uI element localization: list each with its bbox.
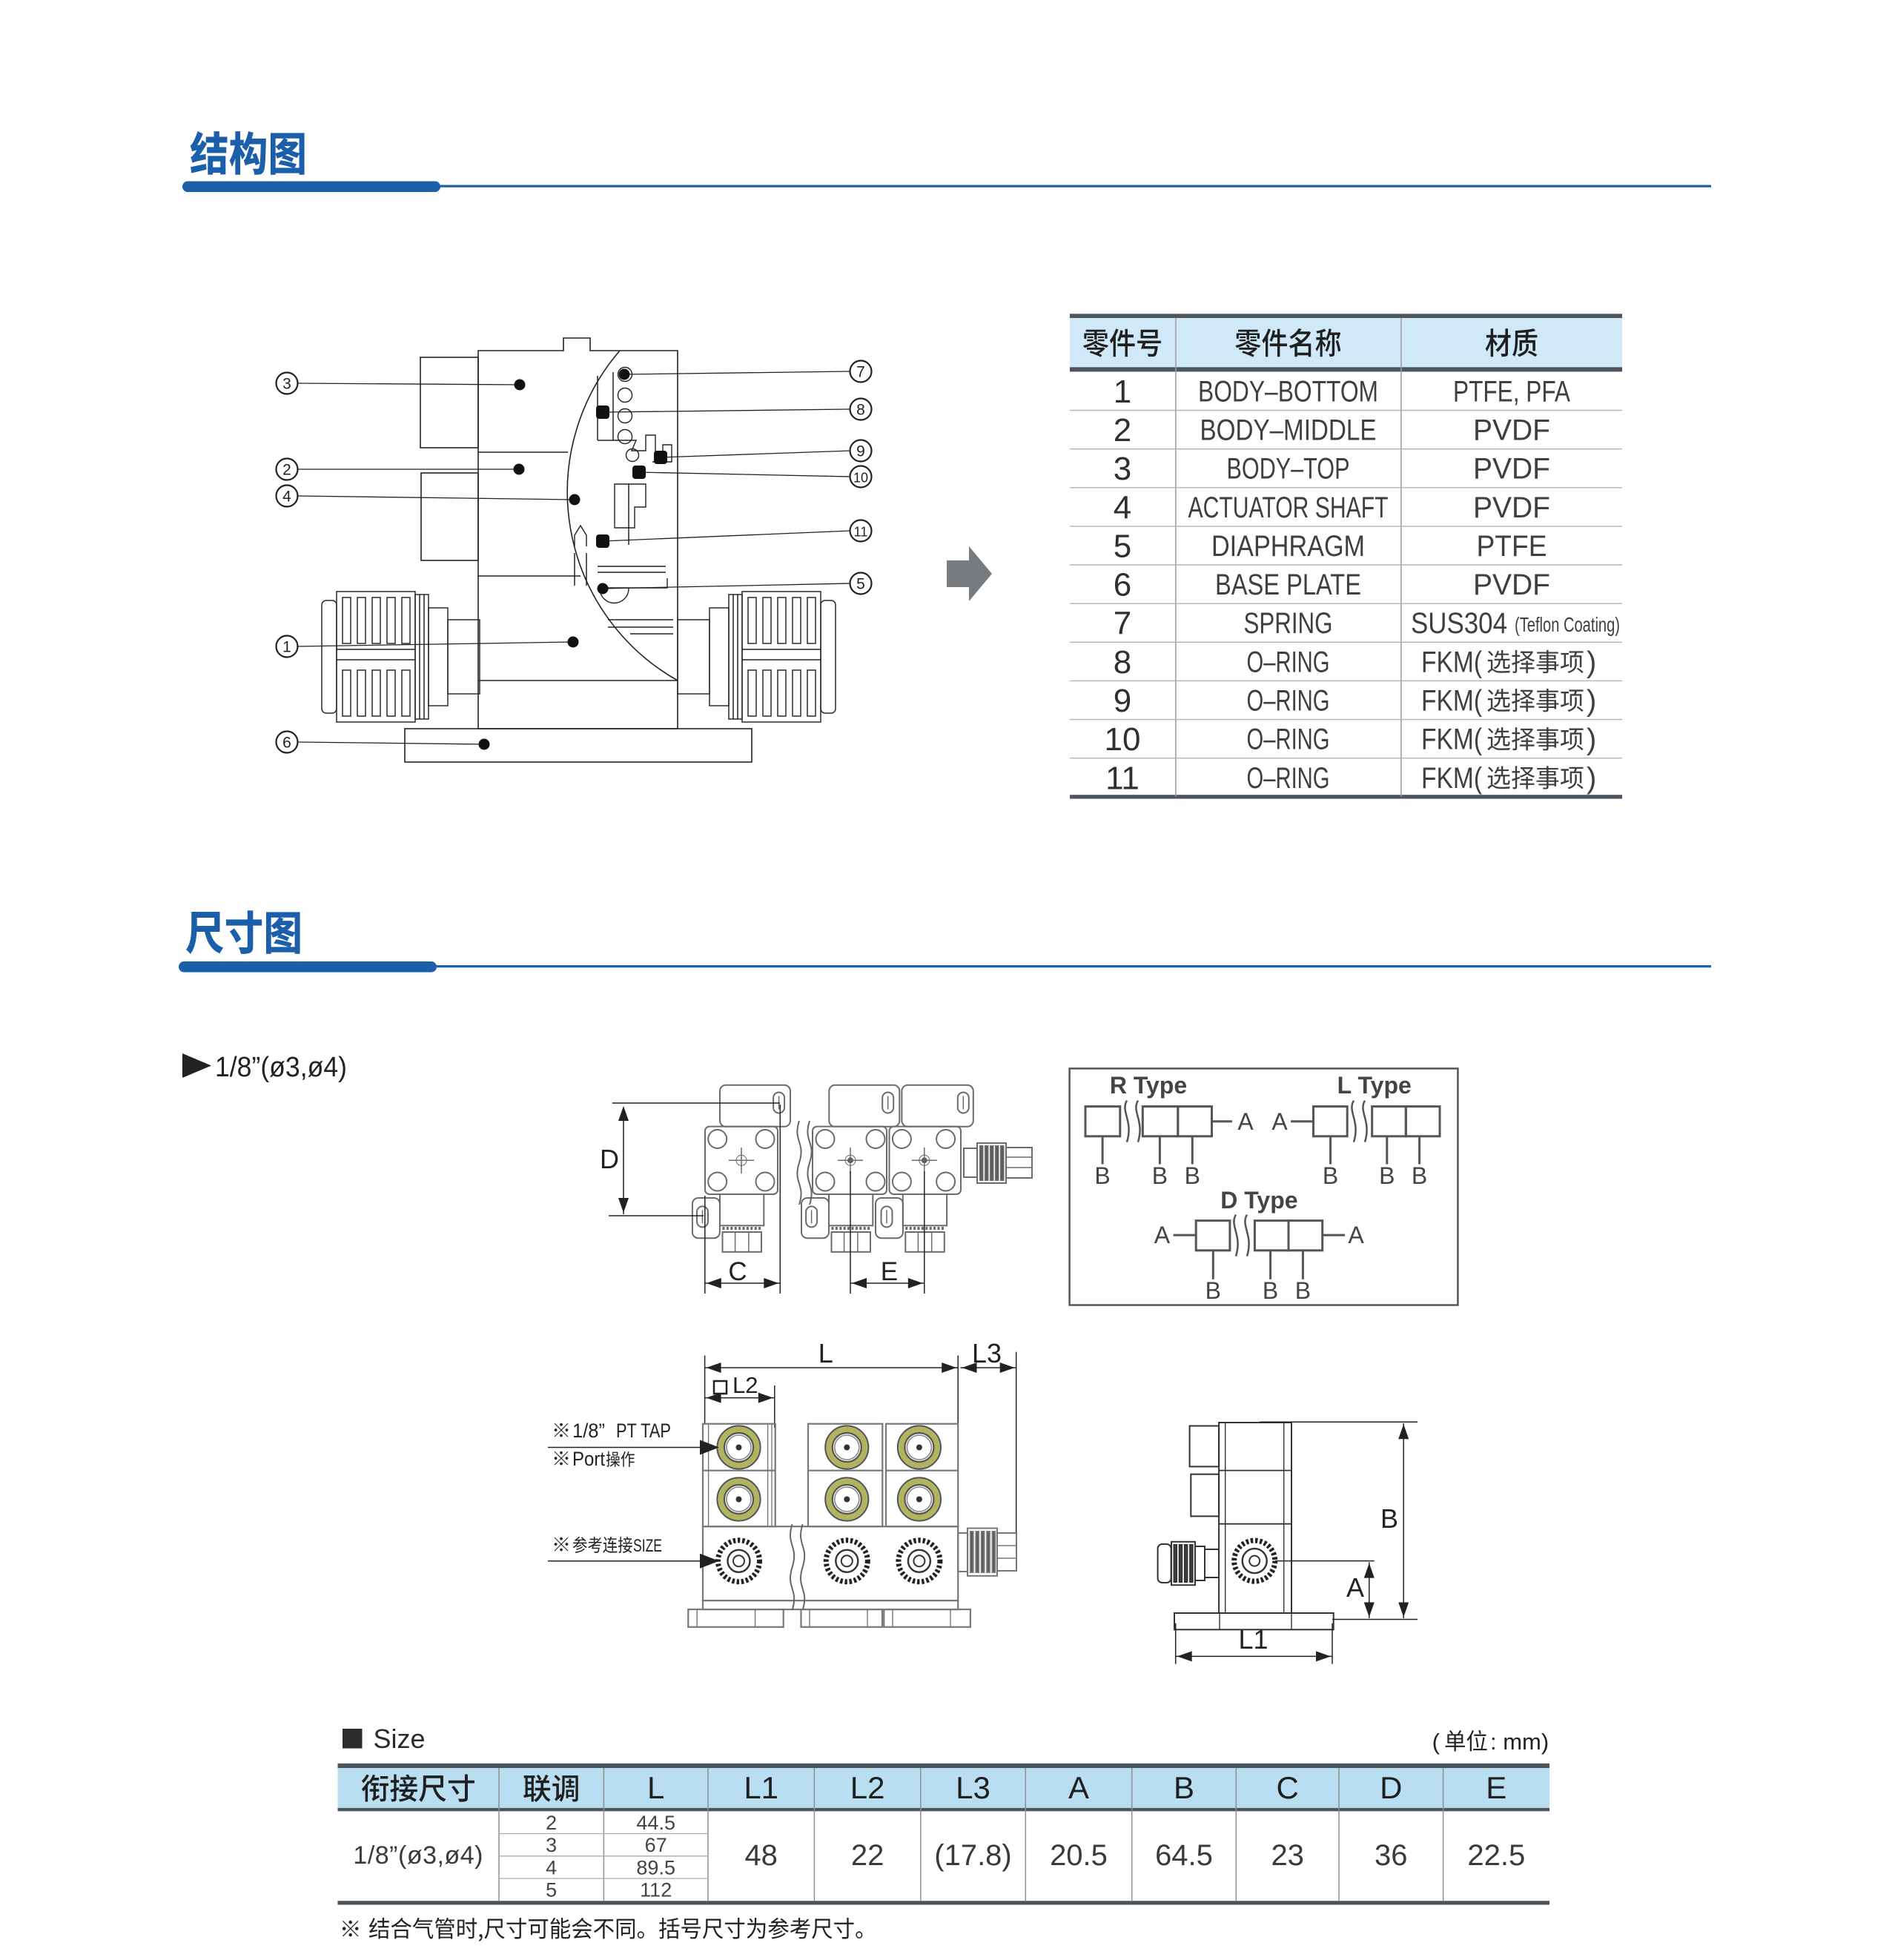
svg-text:PVDF: PVDF xyxy=(1473,453,1550,486)
svg-text:1/8”(ø3,ø4): 1/8”(ø3,ø4) xyxy=(215,1052,347,1083)
svg-text:2: 2 xyxy=(1114,412,1131,448)
svg-text:L3: L3 xyxy=(956,1770,990,1805)
svg-text:PTFE, PFA: PTFE, PFA xyxy=(1453,376,1570,408)
svg-text:SUS304: SUS304 xyxy=(1411,607,1507,640)
svg-text:SIZE: SIZE xyxy=(633,1536,662,1556)
svg-text:5: 5 xyxy=(1114,529,1131,565)
svg-text:B: B xyxy=(1323,1162,1338,1189)
svg-text:36: 36 xyxy=(1375,1839,1408,1872)
svg-text:O–RING: O–RING xyxy=(1247,646,1330,678)
svg-text:7: 7 xyxy=(856,364,865,381)
svg-text:4: 4 xyxy=(546,1856,557,1878)
svg-text:A: A xyxy=(1346,1572,1364,1603)
svg-text:20.5: 20.5 xyxy=(1050,1839,1108,1872)
svg-text:O–RING: O–RING xyxy=(1247,724,1330,756)
svg-text:B: B xyxy=(1263,1277,1278,1304)
svg-text:): ) xyxy=(1587,646,1596,678)
svg-text:3: 3 xyxy=(1114,451,1131,487)
svg-text:): ) xyxy=(1587,762,1596,795)
svg-text:A: A xyxy=(1271,1108,1288,1135)
svg-text:8: 8 xyxy=(856,402,865,419)
svg-text:67: 67 xyxy=(645,1834,667,1856)
svg-text:: mm): : mm) xyxy=(1490,1729,1549,1755)
svg-text:10: 10 xyxy=(853,471,868,486)
svg-text:PVDF: PVDF xyxy=(1473,569,1550,601)
svg-text:FKM(: FKM( xyxy=(1421,646,1483,678)
svg-text:PVDF: PVDF xyxy=(1473,414,1550,447)
svg-text:SPRING: SPRING xyxy=(1244,607,1333,640)
svg-text:): ) xyxy=(1587,685,1596,718)
svg-text:L Type: L Type xyxy=(1337,1072,1412,1099)
svg-text:22.5: 22.5 xyxy=(1467,1839,1525,1872)
svg-text:FKM(: FKM( xyxy=(1421,685,1483,718)
svg-text:B: B xyxy=(1152,1162,1168,1189)
svg-text:L3: L3 xyxy=(972,1338,1002,1368)
svg-text:C: C xyxy=(1277,1770,1299,1805)
svg-text:9: 9 xyxy=(1114,683,1131,719)
svg-text:L: L xyxy=(818,1338,833,1368)
svg-text:11: 11 xyxy=(854,525,868,540)
svg-text:112: 112 xyxy=(640,1879,672,1901)
svg-text:L: L xyxy=(647,1770,664,1805)
svg-text:B: B xyxy=(1205,1277,1221,1304)
svg-text:9: 9 xyxy=(856,443,865,460)
svg-text:C: C xyxy=(728,1257,747,1286)
svg-text:E: E xyxy=(881,1257,898,1286)
svg-text:ACTUATOR SHAFT: ACTUATOR SHAFT xyxy=(1188,491,1389,524)
svg-text:Size: Size xyxy=(374,1724,426,1754)
svg-text:PTFE: PTFE xyxy=(1477,530,1547,563)
svg-text:B: B xyxy=(1412,1162,1427,1189)
svg-text:PVDF: PVDF xyxy=(1473,491,1550,524)
svg-text:1/8”(ø3,ø4): 1/8”(ø3,ø4) xyxy=(353,1841,483,1870)
svg-text:7: 7 xyxy=(1114,606,1131,642)
svg-text:L1: L1 xyxy=(744,1770,778,1805)
svg-text:A: A xyxy=(1237,1108,1254,1135)
svg-text:5: 5 xyxy=(546,1879,557,1901)
svg-text:2: 2 xyxy=(546,1812,557,1834)
svg-text:(Teflon Coating): (Teflon Coating) xyxy=(1515,613,1620,636)
svg-text:48: 48 xyxy=(744,1839,778,1872)
svg-text:O–RING: O–RING xyxy=(1247,685,1330,718)
svg-text:FKM(: FKM( xyxy=(1421,762,1483,795)
svg-text:B: B xyxy=(1174,1770,1194,1805)
svg-text:A: A xyxy=(1154,1222,1171,1248)
svg-text:44.5: 44.5 xyxy=(636,1812,675,1834)
svg-text:BODY–MIDDLE: BODY–MIDDLE xyxy=(1200,414,1377,447)
svg-text:E: E xyxy=(1486,1770,1506,1805)
svg-text:B: B xyxy=(1094,1162,1110,1189)
svg-text:6: 6 xyxy=(282,735,291,752)
svg-text:2: 2 xyxy=(282,462,291,479)
svg-text:FKM(: FKM( xyxy=(1421,724,1483,756)
svg-text:3: 3 xyxy=(546,1834,557,1856)
svg-text:PT TAP: PT TAP xyxy=(616,1420,671,1442)
svg-text:1: 1 xyxy=(1114,374,1131,410)
svg-text:1/8”: 1/8” xyxy=(572,1420,605,1442)
svg-text:4: 4 xyxy=(282,489,291,506)
svg-text:BODY–TOP: BODY–TOP xyxy=(1227,453,1350,486)
svg-text:B: B xyxy=(1379,1162,1395,1189)
svg-text:23: 23 xyxy=(1271,1839,1304,1872)
svg-text:L2: L2 xyxy=(850,1770,885,1805)
svg-text:1: 1 xyxy=(282,639,291,656)
svg-text:8: 8 xyxy=(1114,644,1131,681)
svg-text:22: 22 xyxy=(851,1839,884,1872)
svg-text:B: B xyxy=(1295,1277,1311,1304)
svg-text:D: D xyxy=(1380,1770,1402,1805)
svg-text:A: A xyxy=(1348,1222,1364,1248)
svg-text:DIAPHRAGM: DIAPHRAGM xyxy=(1211,530,1365,563)
svg-text:(: ( xyxy=(1432,1729,1440,1755)
svg-text:D Type: D Type xyxy=(1220,1187,1297,1214)
svg-text:B: B xyxy=(1380,1503,1398,1534)
svg-text:3: 3 xyxy=(282,376,291,393)
svg-text:6: 6 xyxy=(1114,567,1131,603)
svg-text:L1: L1 xyxy=(1238,1624,1268,1655)
svg-text:D: D xyxy=(600,1144,619,1174)
svg-text:O–RING: O–RING xyxy=(1247,762,1330,795)
svg-text:A: A xyxy=(1068,1770,1089,1805)
svg-text:L2: L2 xyxy=(732,1372,758,1398)
svg-text:BODY–BOTTOM: BODY–BOTTOM xyxy=(1198,376,1378,408)
svg-text:11: 11 xyxy=(1105,760,1139,796)
svg-text:BASE PLATE: BASE PLATE xyxy=(1215,569,1361,601)
svg-text:5: 5 xyxy=(856,576,865,593)
svg-text:): ) xyxy=(1587,724,1596,756)
svg-text:Port: Port xyxy=(572,1448,605,1470)
svg-text:B: B xyxy=(1185,1162,1200,1189)
svg-text:(17.8): (17.8) xyxy=(934,1839,1012,1872)
svg-text:4: 4 xyxy=(1114,489,1131,526)
svg-text:R Type: R Type xyxy=(1110,1072,1187,1099)
svg-text:64.5: 64.5 xyxy=(1155,1839,1213,1872)
svg-text:10: 10 xyxy=(1105,721,1141,758)
svg-text:89.5: 89.5 xyxy=(636,1856,675,1878)
